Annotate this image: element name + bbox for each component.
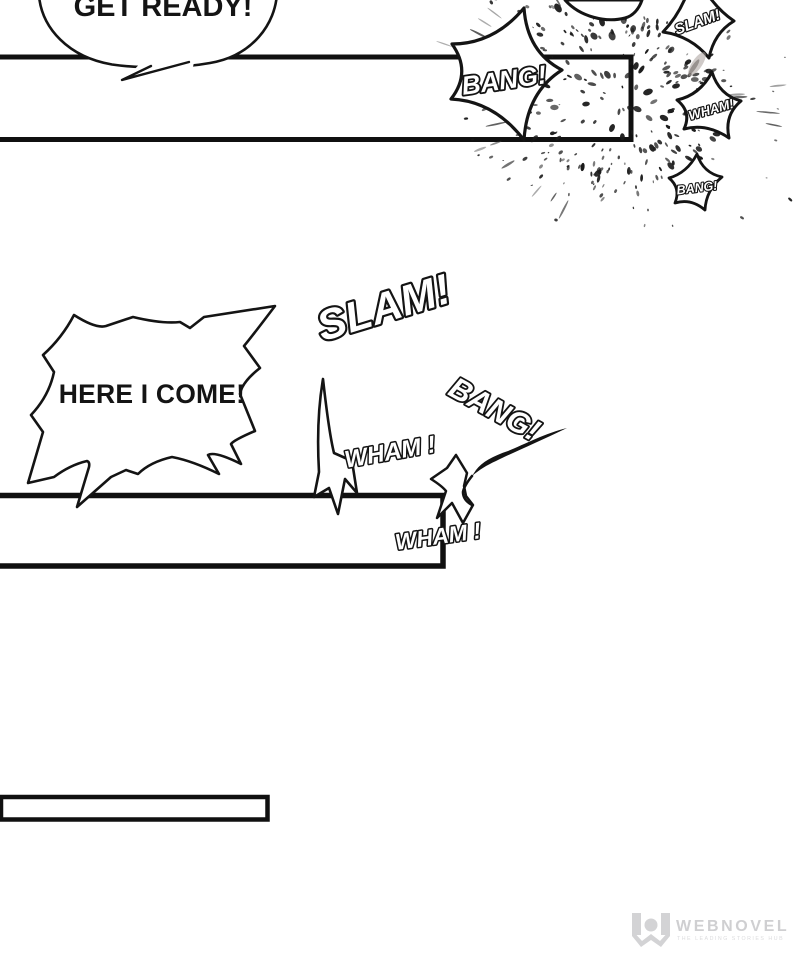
svg-text:HERE I COME!: HERE I COME!	[59, 379, 245, 409]
svg-text:GET READY!: GET READY!	[74, 0, 253, 23]
svg-text:WEBNOVEL: WEBNOVEL	[676, 918, 789, 935]
svg-text:THE LEADING STORIES HUB: THE LEADING STORIES HUB	[677, 936, 784, 942]
